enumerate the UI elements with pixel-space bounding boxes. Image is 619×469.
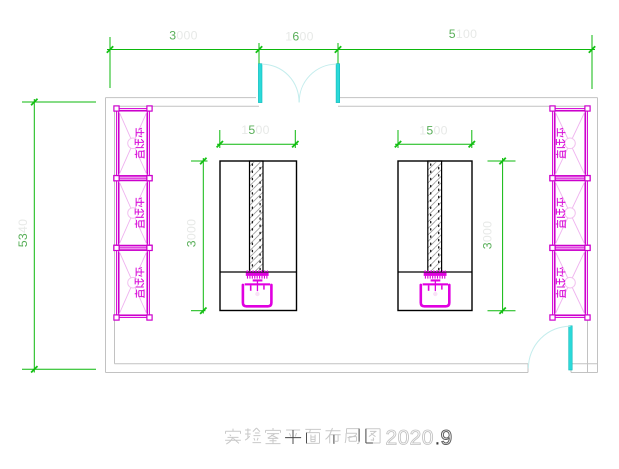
svg-text:3000: 3000 [184,219,198,248]
svg-text:2020: 2020 [386,426,434,449]
svg-text:9: 9 [441,426,453,449]
svg-text:1500: 1500 [241,123,270,137]
svg-text:3000: 3000 [169,29,198,43]
svg-text:1600: 1600 [285,30,314,44]
svg-text:5340: 5340 [16,219,30,248]
svg-text:1500: 1500 [419,123,448,137]
svg-text:3000: 3000 [481,221,495,250]
svg-text:5100: 5100 [449,27,478,41]
svg-text:.: . [435,426,441,449]
